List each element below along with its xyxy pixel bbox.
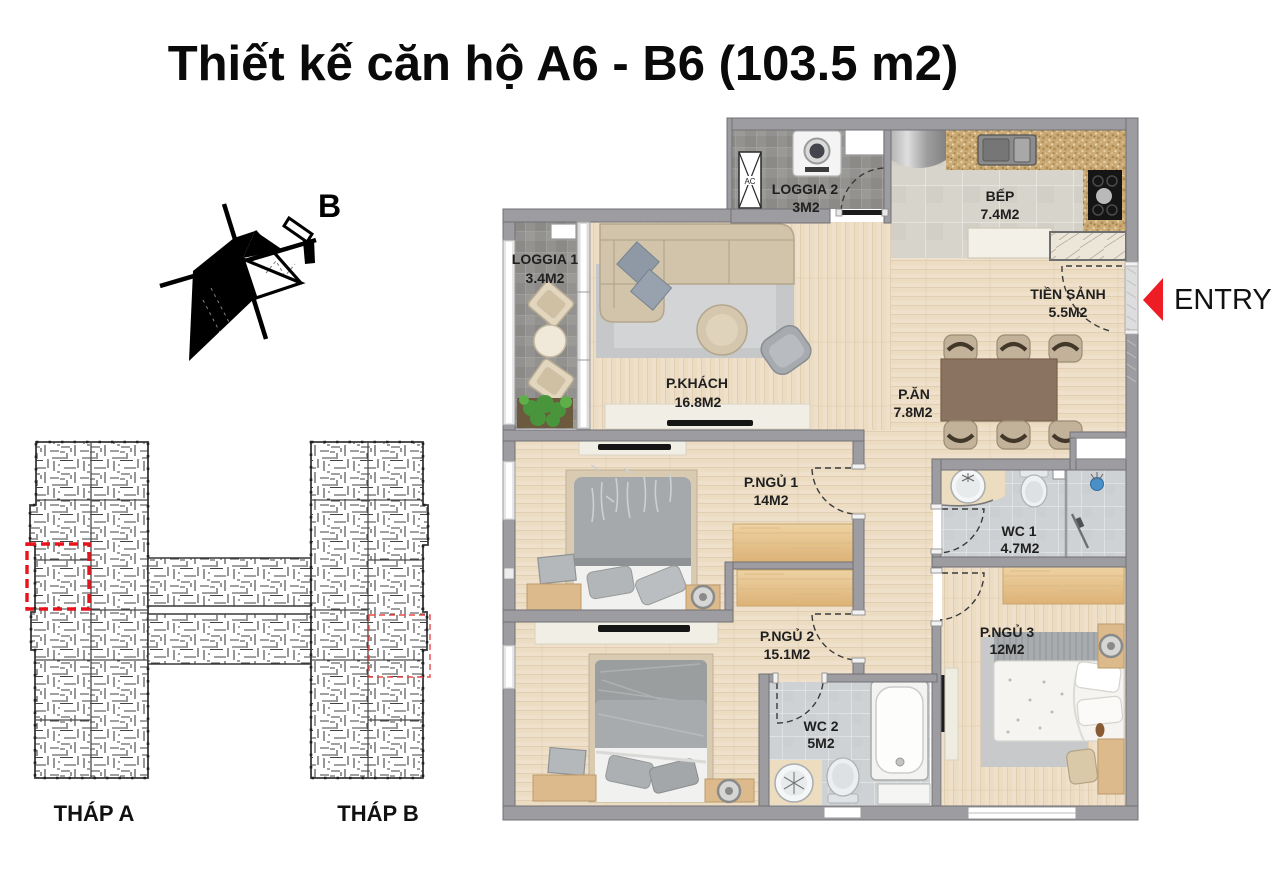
svg-text:P.NGỦ 3: P.NGỦ 3 [980, 623, 1034, 640]
svg-text:5M2: 5M2 [807, 735, 834, 751]
svg-text:3M2: 3M2 [792, 199, 819, 215]
svg-text:P.NGỦ 2: P.NGỦ 2 [760, 627, 814, 644]
svg-text:B: B [318, 188, 341, 224]
svg-text:3.4M2: 3.4M2 [526, 270, 565, 286]
svg-text:LOGGIA 2: LOGGIA 2 [772, 181, 839, 197]
svg-text:P.KHÁCH: P.KHÁCH [666, 375, 728, 391]
svg-text:THÁP A: THÁP A [54, 801, 135, 826]
svg-text:4.7M2: 4.7M2 [1001, 540, 1040, 556]
svg-text:7.4M2: 7.4M2 [981, 206, 1020, 222]
svg-text:P.NGỦ 1: P.NGỦ 1 [744, 473, 798, 490]
svg-text:5.5M2: 5.5M2 [1049, 304, 1088, 320]
svg-text:ENTRY: ENTRY [1174, 284, 1272, 316]
svg-text:AC: AC [744, 177, 755, 186]
svg-text:LOGGIA 1: LOGGIA 1 [512, 251, 579, 267]
svg-text:14M2: 14M2 [753, 492, 788, 508]
svg-text:16.8M2: 16.8M2 [675, 394, 722, 410]
svg-text:WC 2: WC 2 [804, 718, 839, 734]
svg-text:WC 1: WC 1 [1002, 523, 1037, 539]
svg-text:7.8M2: 7.8M2 [894, 404, 933, 420]
svg-text:P.ĂN: P.ĂN [898, 386, 930, 402]
svg-text:BẾP: BẾP [986, 188, 1015, 204]
svg-text:12M2: 12M2 [989, 641, 1024, 657]
svg-text:THÁP B: THÁP B [337, 801, 419, 826]
svg-text:Thiết kế căn hộ A6 - B6 (103.5: Thiết kế căn hộ A6 - B6 (103.5 m2) [168, 37, 959, 91]
svg-text:TIỀN SẢNH: TIỀN SẢNH [1030, 286, 1105, 302]
svg-text:15.1M2: 15.1M2 [764, 646, 811, 662]
